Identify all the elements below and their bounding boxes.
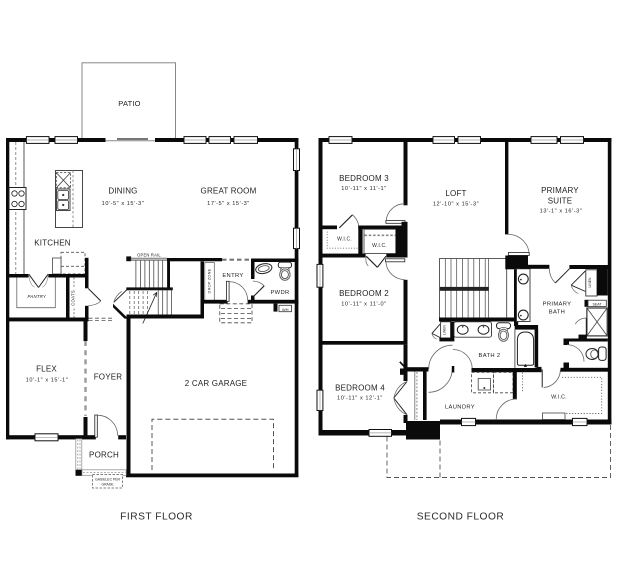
svg-text:13'-1" x 16'-3": 13'-1" x 16'-3": [540, 209, 583, 215]
svg-text:10'-1" x 15'-1": 10'-1" x 15'-1": [26, 378, 69, 384]
svg-text:FLEX: FLEX: [36, 365, 57, 374]
svg-text:BATH: BATH: [549, 310, 565, 316]
svg-text:LINEN: LINEN: [443, 324, 447, 335]
svg-text:PATIO: PATIO: [118, 99, 140, 108]
svg-text:DINING: DINING: [108, 187, 137, 196]
svg-text:10'-11" x 12'-1": 10'-11" x 12'-1": [337, 396, 383, 402]
svg-text:DROP ZONE: DROP ZONE: [207, 268, 212, 293]
svg-text:BEDROOM 2: BEDROOM 2: [339, 289, 389, 298]
svg-text:KITCHEN: KITCHEN: [34, 239, 71, 248]
svg-text:W.I.C.: W.I.C.: [337, 237, 352, 243]
svg-text:GRADE: GRADE: [101, 483, 114, 487]
svg-text:SECOND FLOOR: SECOND FLOOR: [417, 512, 505, 523]
svg-text:FIRST FLOOR: FIRST FLOOR: [120, 512, 193, 523]
svg-text:ENTRY: ENTRY: [222, 273, 243, 279]
svg-text:GAS/ELEC PER: GAS/ELEC PER: [95, 478, 120, 482]
svg-text:2 CAR GARAGE: 2 CAR GARAGE: [185, 379, 247, 388]
svg-text:OPEN RAIL: OPEN RAIL: [137, 252, 161, 257]
svg-text:LINEN: LINEN: [588, 277, 592, 288]
svg-text:10'-5" x 15'-3": 10'-5" x 15'-3": [102, 201, 145, 207]
svg-text:LAUNDRY: LAUNDRY: [445, 405, 475, 411]
svg-text:SEAT: SEAT: [592, 302, 602, 306]
svg-text:FOYER: FOYER: [94, 373, 123, 382]
svg-text:10'-11" x 11'-1": 10'-11" x 11'-1": [341, 186, 386, 192]
svg-text:GREAT ROOM: GREAT ROOM: [201, 187, 257, 196]
svg-text:PORCH: PORCH: [89, 451, 119, 460]
svg-text:PRIMARY: PRIMARY: [541, 186, 579, 195]
svg-text:12'-10" x 15'-3": 12'-10" x 15'-3": [433, 202, 479, 208]
svg-text:10'-11" x 11'-0": 10'-11" x 11'-0": [341, 302, 386, 308]
svg-text:W.I.C.: W.I.C.: [551, 394, 567, 400]
svg-text:BEDROOM 4: BEDROOM 4: [335, 384, 385, 393]
svg-text:LOFT: LOFT: [445, 189, 466, 198]
svg-text:W.I.C.: W.I.C.: [372, 243, 387, 249]
svg-text:COATS: COATS: [71, 290, 76, 306]
svg-text:BATH 2: BATH 2: [479, 353, 501, 359]
svg-text:17'-5" x 15'-3": 17'-5" x 15'-3": [207, 201, 250, 207]
svg-text:BEDROOM 3: BEDROOM 3: [339, 174, 389, 183]
svg-text:PRIMARY: PRIMARY: [543, 302, 572, 308]
svg-text:PWDR: PWDR: [270, 290, 289, 296]
svg-text:SUITE: SUITE: [548, 197, 573, 206]
svg-text:PANTRY: PANTRY: [28, 294, 47, 299]
svg-text:WH: WH: [282, 308, 289, 312]
